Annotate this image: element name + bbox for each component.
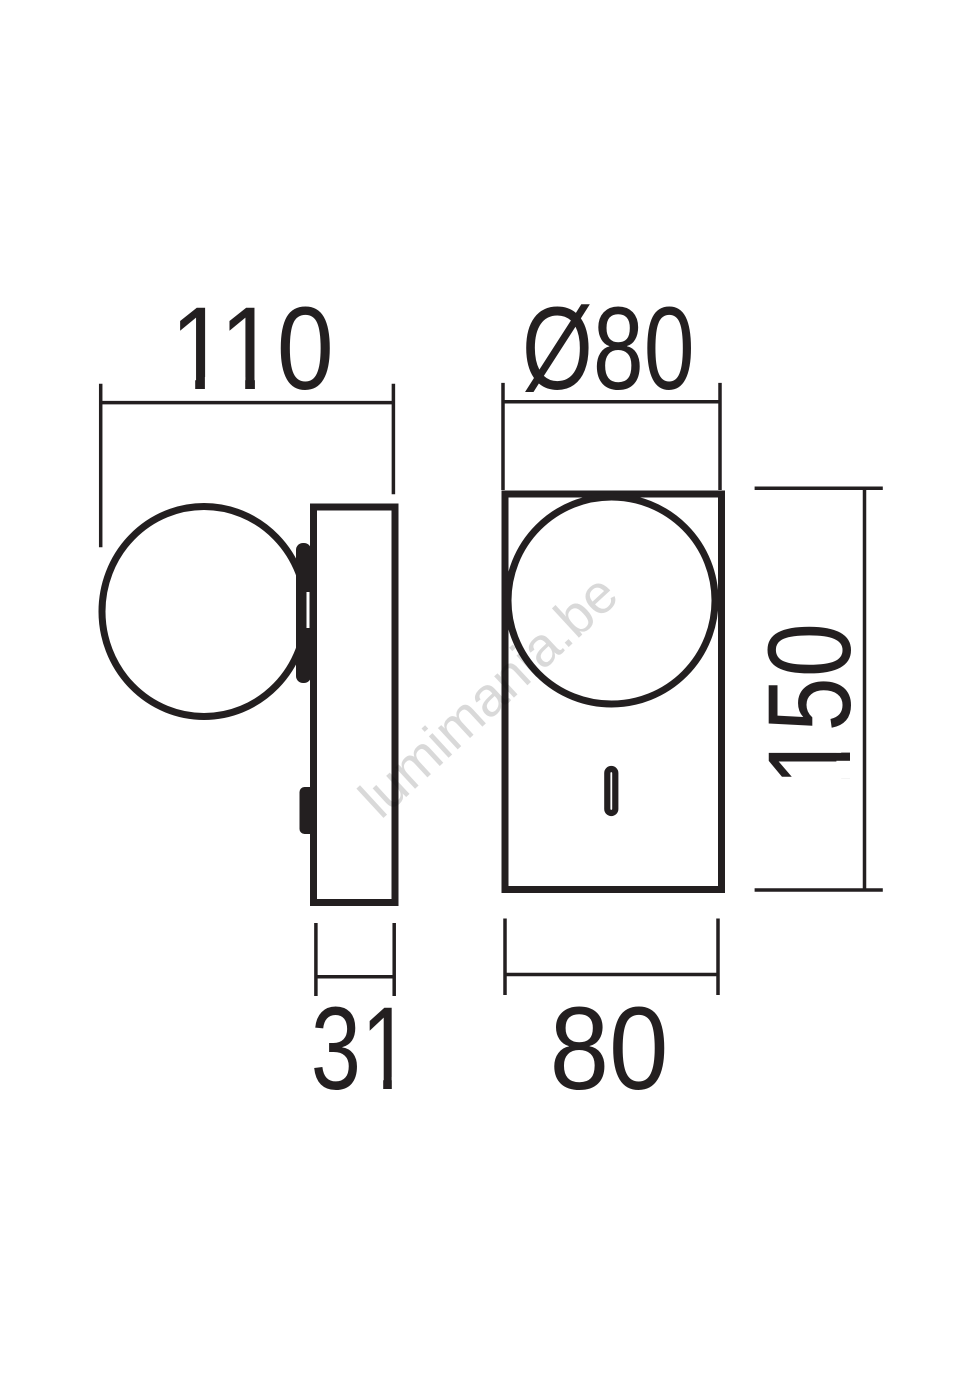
svg-text:150: 150	[743, 623, 875, 786]
svg-text:31: 31	[311, 983, 411, 1114]
svg-text:80: 80	[550, 982, 669, 1114]
svg-text:Ø80: Ø80	[522, 283, 695, 415]
svg-text:110: 110	[170, 283, 334, 414]
